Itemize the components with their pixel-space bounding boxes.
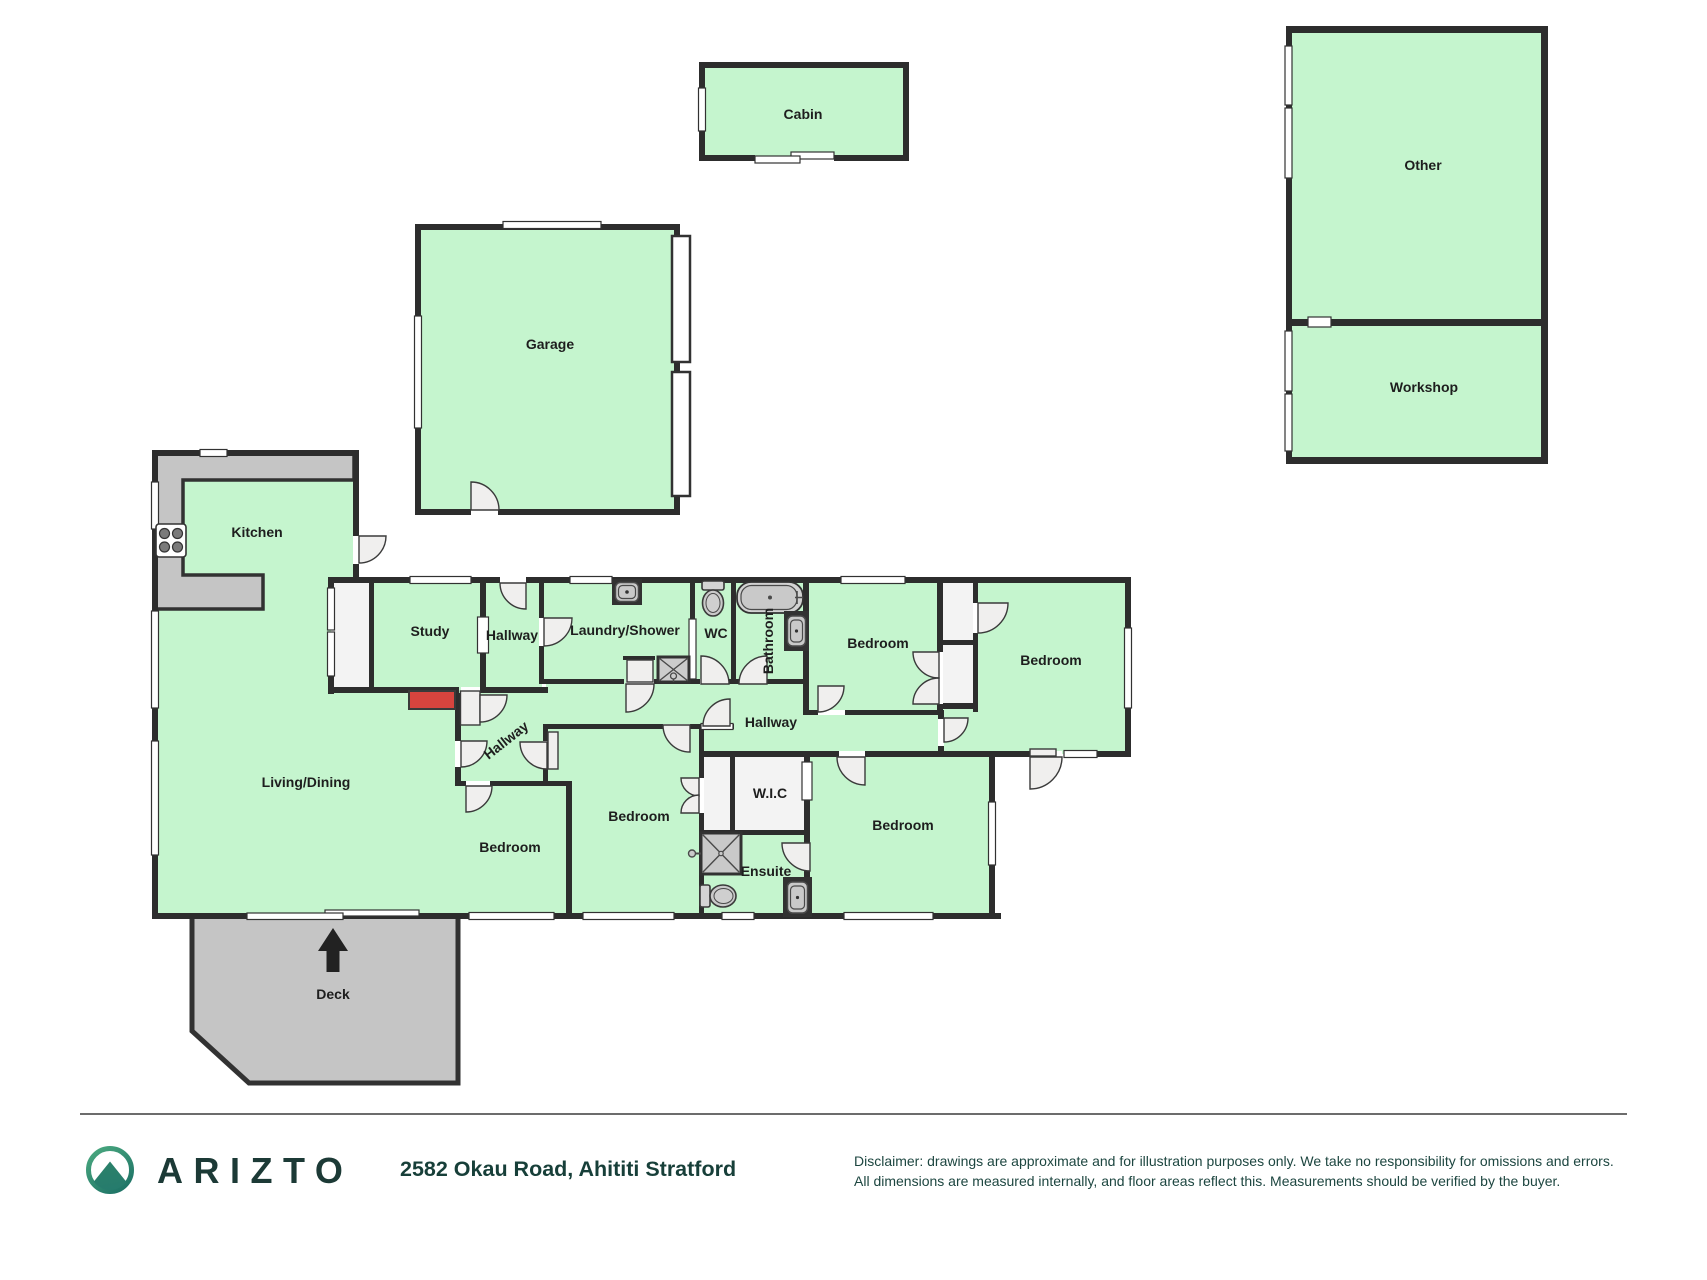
svg-text:W.I.C: W.I.C — [753, 785, 787, 801]
svg-text:Laundry/Shower: Laundry/Shower — [570, 622, 680, 638]
svg-text:Bedroom: Bedroom — [1020, 652, 1081, 668]
svg-text:Bedroom: Bedroom — [847, 635, 908, 651]
svg-text:Bedroom: Bedroom — [872, 817, 933, 833]
svg-text:Hallway: Hallway — [486, 627, 538, 643]
svg-text:ARIZTO: ARIZTO — [157, 1150, 353, 1191]
svg-text:All dimensions are measured in: All dimensions are measured internally, … — [854, 1173, 1560, 1189]
svg-text:Garage: Garage — [526, 336, 574, 352]
svg-text:Kitchen: Kitchen — [231, 524, 282, 540]
svg-text:Ensuite: Ensuite — [741, 863, 792, 879]
svg-text:Bathroom: Bathroom — [760, 608, 776, 674]
svg-text:Bedroom: Bedroom — [608, 808, 669, 824]
svg-text:Living/Dining: Living/Dining — [262, 774, 351, 790]
svg-text:WC: WC — [704, 625, 727, 641]
svg-text:Study: Study — [411, 623, 450, 639]
svg-text:Deck: Deck — [316, 986, 350, 1002]
svg-text:Other: Other — [1404, 157, 1442, 173]
svg-text:Workshop: Workshop — [1390, 379, 1458, 395]
svg-text:Disclaimer: drawings are appro: Disclaimer: drawings are approximate and… — [854, 1153, 1614, 1169]
svg-text:Cabin: Cabin — [784, 106, 823, 122]
svg-text:Hallway: Hallway — [745, 714, 797, 730]
svg-text:2582 Okau Road, Ahititi Stratf: 2582 Okau Road, Ahititi Stratford — [400, 1157, 736, 1181]
svg-text:Bedroom: Bedroom — [479, 839, 540, 855]
